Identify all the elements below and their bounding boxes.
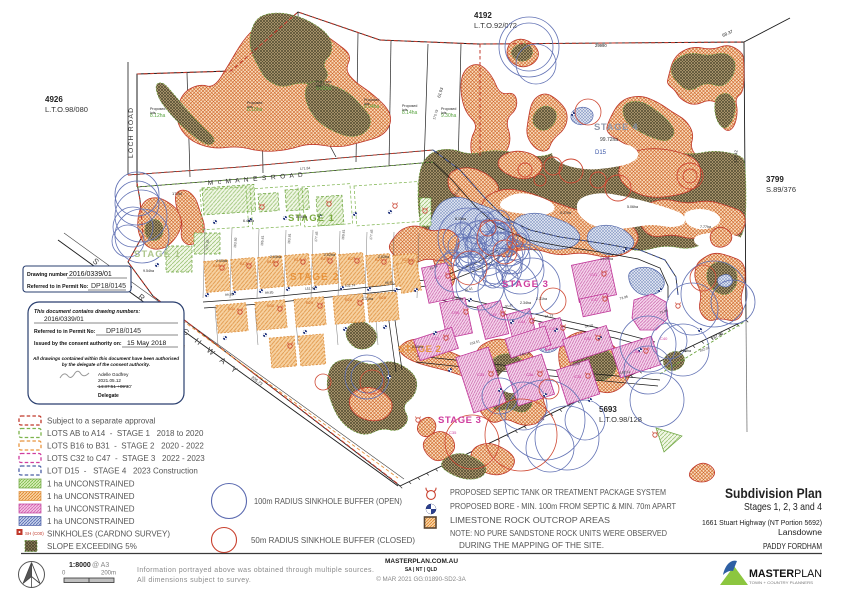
svg-text:B17: B17	[240, 261, 248, 266]
svg-text:L.T.O.98/080: L.T.O.98/080	[45, 105, 88, 114]
svg-text:LOTS B16 to B31 - STAGE 2: LOTS B16 to B31 - STAGE 2 2020 - 2022	[47, 442, 204, 451]
svg-text:2016/0339/01: 2016/0339/01	[44, 316, 84, 323]
svg-text:NOTE: NO PURE SANDSTONE ROCK U: NOTE: NO PURE SANDSTONE ROCK UNITS WERE …	[450, 529, 667, 538]
svg-text:PROPOSED SEPTIC TANK OR TREATM: PROPOSED SEPTIC TANK OR TREATMENT PACKAG…	[450, 488, 666, 497]
svg-text:29990: 29990	[595, 43, 607, 48]
svg-text:LOTS C32 to C47 - STAGE 3: LOTS C32 to C47 - STAGE 3 2022 - 2023	[47, 454, 205, 463]
svg-text:C32: C32	[584, 336, 592, 341]
svg-text:C42: C42	[591, 297, 599, 302]
svg-text:132.74: 132.74	[345, 283, 356, 288]
svg-text:LIMESTONE ROCK OUTCROP AREAS: LIMESTONE ROCK OUTCROP AREAS	[450, 516, 610, 525]
svg-text:C43: C43	[549, 326, 557, 331]
svg-text:2.02ha: 2.02ha	[324, 253, 335, 257]
svg-text:2.31ha: 2.31ha	[362, 297, 373, 301]
svg-text:98.85: 98.85	[385, 280, 394, 285]
svg-text:lots: lots	[150, 111, 156, 115]
svg-text:SLOPE EXCEEDING 5%: SLOPE EXCEEDING 5%	[47, 542, 137, 551]
svg-text:LOTS AB to A14 - STAGE 1 2: LOTS AB to A14 - STAGE 1 2018 to 2020	[47, 429, 204, 438]
svg-text:Delegate: Delegate	[98, 393, 119, 399]
svg-text:C41: C41	[590, 272, 598, 277]
svg-text:B29: B29	[306, 300, 314, 305]
svg-text:50m RADIUS SINKHOLE BUFFER (CL: 50m RADIUS SINKHOLE BUFFER (CLOSED)	[251, 536, 415, 545]
svg-text:Lansdowne: Lansdowne	[778, 528, 822, 537]
svg-text:STAGE 2: STAGE 2	[290, 272, 339, 283]
svg-text:5.37ha: 5.37ha	[560, 211, 571, 215]
svg-text:C46: C46	[452, 310, 460, 315]
svg-text:C38: C38	[574, 374, 582, 379]
svg-text:B30: B30	[267, 303, 275, 308]
svg-text:All drawings contained within: All drawings contained within this docum…	[32, 356, 179, 361]
svg-text:C44: C44	[518, 319, 526, 324]
svg-text:PADDY FORDHAM: PADDY FORDHAM	[763, 542, 822, 551]
svg-text:lots: lots	[441, 111, 447, 115]
svg-text:1 ha UNCONSTRAINED: 1 ha UNCONSTRAINED	[47, 492, 135, 501]
svg-text:lots: lots	[364, 102, 370, 106]
svg-text:SA | NT | QLD: SA | NT | QLD	[405, 567, 438, 573]
svg-text:4192: 4192	[474, 11, 492, 20]
svg-text:6.43ha: 6.43ha	[243, 219, 254, 223]
svg-text:1 ha UNCONSTRAINED: 1 ha UNCONSTRAINED	[47, 505, 135, 514]
svg-text:129.42: 129.42	[733, 149, 738, 163]
svg-text:B25: B25	[379, 295, 387, 300]
svg-text:C40: C40	[660, 336, 668, 341]
svg-text:Information portrayed above wa: Information portrayed above was obtained…	[137, 567, 374, 574]
svg-text:C33: C33	[432, 336, 440, 341]
svg-text:99.72ha: 99.72ha	[600, 137, 618, 143]
svg-text:B28: B28	[345, 297, 353, 302]
svg-text:100m RADIUS SINKHOLE BUFFER (O: 100m RADIUS SINKHOLE BUFFER (OPEN)	[254, 497, 402, 506]
svg-text:17.84: 17.84	[172, 191, 183, 196]
svg-text:2.31ha: 2.31ha	[536, 297, 547, 301]
svg-text:C35: C35	[477, 372, 485, 377]
svg-text:STAGE 1: STAGE 1	[134, 249, 181, 260]
svg-text:PROPOSED BORE - MIN. 100m FROM: PROPOSED BORE - MIN. 100m FROM SEPTIC & …	[450, 502, 676, 511]
svg-text:B16: B16	[213, 263, 221, 268]
svg-text:C47: C47	[434, 275, 442, 280]
svg-text:6.15ha: 6.15ha	[455, 217, 466, 221]
svg-text:Adelle Godfrey: Adelle Godfrey	[98, 372, 129, 377]
svg-text:0.55ha: 0.55ha	[412, 345, 423, 349]
svg-text:Subdivision Plan: Subdivision Plan	[725, 486, 822, 501]
svg-text:@ A3: @ A3	[92, 562, 109, 569]
svg-text:TOWN + COUNTRY PLANNERS: TOWN + COUNTRY PLANNERS	[749, 581, 814, 585]
svg-text:Referred to in Permit No:: Referred to in Permit No:	[27, 284, 89, 290]
svg-text:Referred to in Permit No:: Referred to in Permit No:	[34, 329, 96, 335]
svg-text:Drawing number: Drawing number	[27, 272, 68, 278]
svg-text:Subject to a separate approval: Subject to a separate approval	[47, 417, 156, 426]
svg-text:4.68ha: 4.68ha	[680, 349, 691, 353]
svg-text:DP18/0145: DP18/0145	[106, 328, 141, 335]
svg-text:5.06ha: 5.06ha	[627, 205, 638, 209]
svg-text:7.77ha: 7.77ha	[700, 225, 711, 229]
svg-text:200m: 200m	[101, 571, 116, 577]
svg-text:This document contains drawing: This document contains drawing numbers:	[34, 309, 140, 315]
svg-text:C39: C39	[632, 349, 640, 354]
svg-text:lots: lots	[316, 84, 322, 88]
svg-text:3799: 3799	[766, 175, 784, 184]
svg-text:by the delegate of the consent: by the delegate of the consent authority…	[62, 362, 150, 367]
svg-text:B31: B31	[228, 306, 236, 311]
svg-text:STAGE 3: STAGE 3	[502, 279, 549, 290]
svg-text:Issued by the consent authorit: Issued by the consent authority on:	[34, 341, 122, 347]
svg-text:STAGE 3: STAGE 3	[438, 415, 481, 426]
svg-text:All dimensions subject to surv: All dimensions subject to survey.	[137, 577, 251, 584]
svg-text:2021.05.12: 2021.05.12	[98, 378, 121, 383]
svg-text:B19: B19	[294, 257, 302, 262]
svg-text:1:8000: 1:8000	[69, 562, 91, 569]
svg-text:MASTERPLAN: MASTERPLAN	[749, 568, 822, 580]
svg-text:© MAR 2021 GG:01890-SD2-3A: © MAR 2021 GG:01890-SD2-3A	[376, 576, 466, 583]
svg-text:D15: D15	[595, 150, 607, 156]
svg-text:SH (C00): SH (C00)	[25, 531, 44, 536]
svg-text:2.01ha: 2.01ha	[270, 255, 281, 259]
svg-text:LOT D15 - STAGE 4 2023 Co: LOT D15 - STAGE 4 2023 Construction	[47, 467, 198, 476]
svg-text:Stages 1, 2, 3 and 4: Stages 1, 2, 3 and 4	[744, 501, 822, 513]
svg-text:9.54ha: 9.54ha	[143, 269, 154, 273]
svg-text:2016/0339/01: 2016/0339/01	[69, 271, 112, 278]
svg-text:lots: lots	[247, 105, 253, 109]
svg-text:S.89/376: S.89/376	[766, 185, 796, 194]
svg-text:8.06ha: 8.06ha	[296, 215, 307, 219]
svg-text:2.39ha: 2.39ha	[452, 297, 463, 301]
svg-text:B21: B21	[348, 256, 356, 261]
svg-text:lots: lots	[402, 108, 408, 112]
svg-text:STAGE 4: STAGE 4	[594, 122, 638, 133]
svg-text:2.02ha: 2.02ha	[378, 255, 389, 259]
svg-text:C45: C45	[489, 312, 497, 317]
svg-text:C35: C35	[449, 430, 457, 435]
svg-text:SINKHOLES (CARDNO SURVEY): SINKHOLES (CARDNO SURVEY)	[47, 530, 170, 539]
svg-text:2.01ha: 2.01ha	[216, 259, 227, 263]
svg-text:LOCH ROAD: LOCH ROAD	[128, 107, 135, 158]
svg-text:15 May 2018: 15 May 2018	[127, 340, 167, 347]
svg-text:4926: 4926	[45, 95, 63, 104]
svg-text:B23: B23	[402, 257, 410, 262]
svg-text:DURING THE MAPPING OF THE SITE: DURING THE MAPPING OF THE SITE.	[459, 541, 604, 550]
svg-text:1 ha UNCONSTRAINED: 1 ha UNCONSTRAINED	[47, 517, 135, 526]
svg-text:DP18/0145: DP18/0145	[91, 283, 126, 290]
svg-text:2.34ha: 2.34ha	[520, 301, 531, 305]
svg-text:151.74: 151.74	[305, 286, 316, 291]
svg-text:B18: B18	[267, 259, 275, 264]
svg-text:1 ha UNCONSTRAINED: 1 ha UNCONSTRAINED	[47, 480, 135, 489]
svg-text:99.85: 99.85	[265, 290, 274, 295]
svg-text:99.85: 99.85	[225, 292, 234, 297]
svg-text:MASTERPLAN.COM.AU: MASTERPLAN.COM.AU	[385, 558, 458, 565]
svg-text:L.T.O.92/072: L.T.O.92/072	[474, 21, 517, 30]
svg-text:1661 Stuart Highway (NT Portio: 1661 Stuart Highway (NT Portion 5692)	[702, 518, 822, 527]
svg-text:14.29ha: 14.29ha	[600, 257, 613, 261]
svg-text:C36: C36	[526, 372, 534, 377]
